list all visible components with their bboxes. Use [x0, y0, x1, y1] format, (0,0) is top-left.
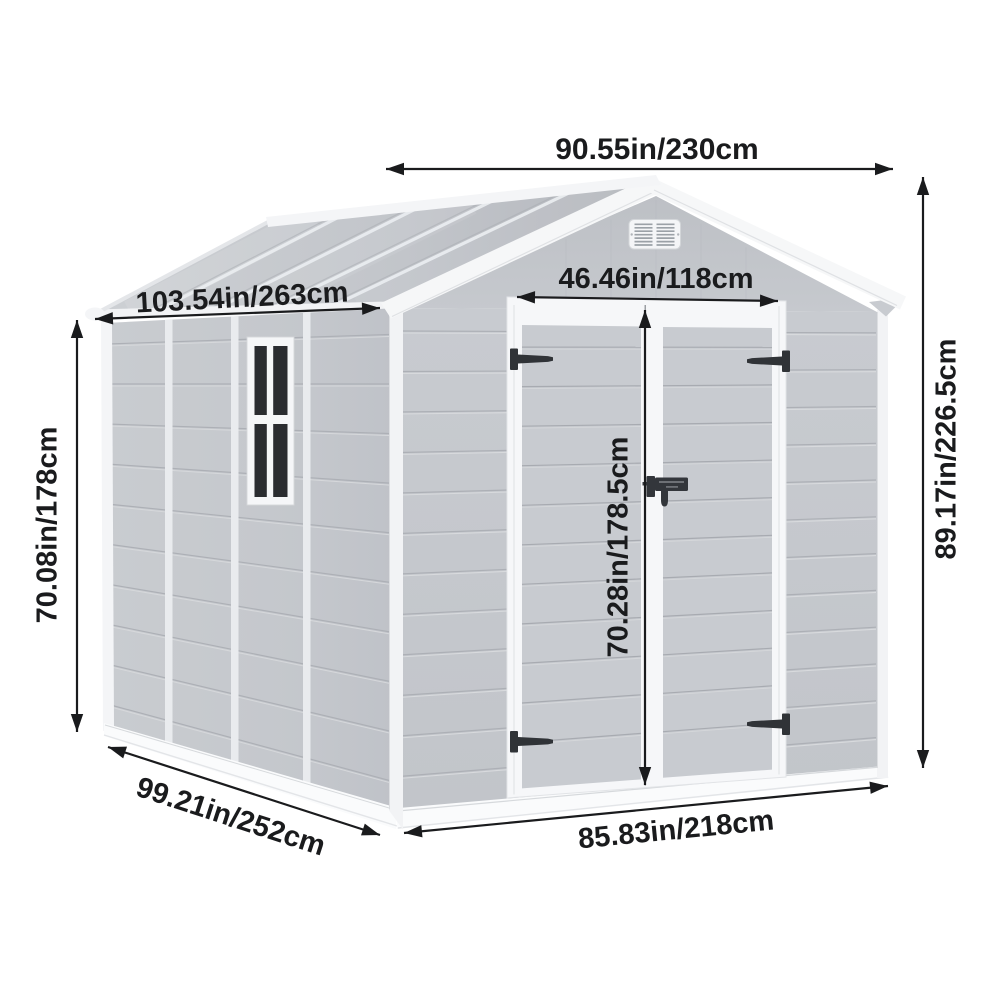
- svg-text:46.46in/118cm: 46.46in/118cm: [558, 263, 753, 295]
- svg-text:90.55in/230cm: 90.55in/230cm: [555, 133, 758, 166]
- svg-text:70.28in/178.5cm: 70.28in/178.5cm: [603, 437, 635, 658]
- svg-text:70.08in/178cm: 70.08in/178cm: [32, 427, 64, 624]
- svg-text:89.17in/226.5cm: 89.17in/226.5cm: [931, 339, 963, 560]
